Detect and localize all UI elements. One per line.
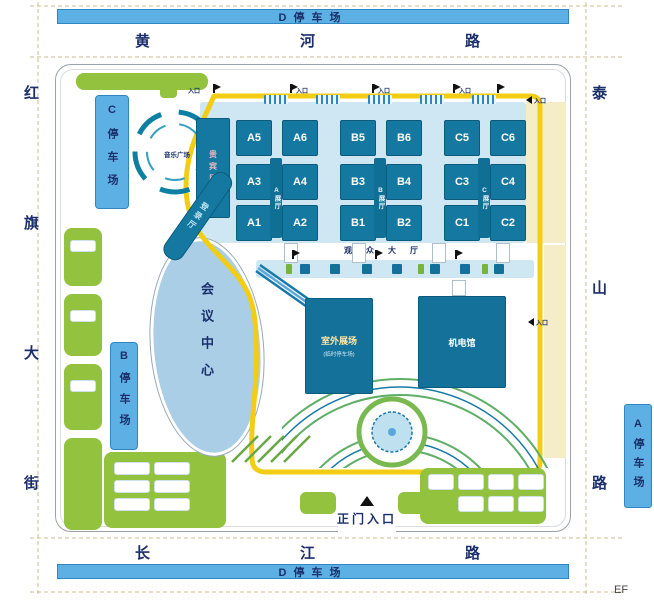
parking-slot	[488, 496, 514, 512]
hall-B4: B4	[386, 164, 422, 200]
hall-B6: B6	[386, 120, 422, 156]
parking-slot	[428, 474, 454, 490]
parking-slot	[114, 480, 150, 493]
outdoor-exhibition-sublabel: (临时停车场)	[323, 350, 354, 358]
parking-slot	[488, 474, 514, 490]
entrance-flag-icon	[213, 84, 215, 93]
machinery-hall-label: 机电馆	[448, 336, 475, 349]
concourse-booth	[330, 264, 340, 274]
main-gate-marker-icon	[360, 496, 374, 506]
parking-slot	[458, 474, 484, 490]
green-strip-left-2	[64, 294, 102, 356]
concourse-booth	[430, 264, 440, 274]
entrance-label: 入口	[188, 86, 200, 95]
corner-note: EF	[614, 584, 628, 596]
concourse-stem	[352, 243, 366, 263]
concourse-green	[482, 264, 488, 274]
outdoor-exhibition: 室外展场 (临时停车场)	[305, 298, 373, 394]
entrance-flag-icon	[372, 84, 374, 93]
concourse-green	[286, 264, 292, 274]
parking-slot	[70, 310, 96, 322]
hall-C4: C4	[490, 164, 526, 200]
pale-zone-right-upper	[526, 102, 566, 243]
entrance-arrow-icon	[526, 96, 532, 104]
hall-B2: B2	[386, 205, 422, 241]
parking-b-label: B停车场	[116, 350, 132, 435]
concourse-green	[418, 264, 424, 274]
street-south: 长江路	[135, 542, 630, 563]
hall-A4: A4	[282, 164, 318, 200]
entrance-arrow-icon	[528, 318, 534, 326]
hall-B5: B5	[340, 120, 376, 156]
hall-B3: B3	[340, 164, 376, 200]
parking-a-bar: A停车场	[624, 404, 652, 508]
parking-slot	[70, 240, 96, 252]
crosswalk-hatch	[368, 95, 392, 104]
hall-C6: C6	[490, 120, 526, 156]
hall-A3: A3	[236, 164, 272, 200]
street-east: 泰山路	[588, 85, 609, 600]
parking-slot	[154, 498, 190, 511]
concourse-booth	[300, 264, 310, 274]
entrance-flag-icon	[290, 84, 292, 93]
entrance-flag-icon	[292, 250, 294, 259]
hall-A1: A1	[236, 205, 272, 241]
machinery-hall: 机电馆	[418, 296, 506, 388]
wing-b-strip: B展厅	[374, 158, 386, 238]
parking-d-bottom-label: D停车场	[279, 564, 348, 580]
wing-c-strip: C展厅	[478, 158, 490, 238]
hall-B1: B1	[340, 205, 376, 241]
concourse-booth	[460, 264, 470, 274]
wing-a-strip: A展厅	[270, 158, 282, 238]
hall-A5: A5	[236, 120, 272, 156]
green-strip-left-1	[64, 228, 102, 286]
concourse-booth	[392, 264, 402, 274]
parking-slot	[114, 498, 150, 511]
parking-d-bottom-bar: D停车场	[57, 564, 569, 579]
green-band-small	[160, 76, 177, 98]
street-north: 黄河路	[135, 30, 630, 51]
parking-slot	[518, 496, 544, 512]
parking-slot	[458, 496, 484, 512]
hall-A6: A6	[282, 120, 318, 156]
concourse-booth	[494, 264, 504, 274]
green-strip-left-4	[64, 438, 102, 530]
hall-C1: C1	[444, 205, 480, 241]
hall-C2: C2	[490, 205, 526, 241]
concourse-booth	[362, 264, 372, 274]
parking-slot	[154, 480, 190, 493]
hall-C5: C5	[444, 120, 480, 156]
concourse-stem	[496, 243, 510, 263]
entrance-label: 入口	[378, 86, 390, 95]
wing-a-label: A展厅	[271, 187, 281, 210]
parking-c-label: C停车场	[104, 104, 120, 197]
parking-slot	[154, 462, 190, 475]
entrance-label: 入口	[534, 96, 546, 105]
entrance-flag-icon	[455, 250, 457, 259]
hall-C3: C3	[444, 164, 480, 200]
crosswalk-hatch	[264, 95, 288, 104]
entrance-label: 入口	[296, 86, 308, 95]
parking-slot	[70, 380, 96, 392]
plaza-label: 音乐广场	[152, 149, 202, 159]
parking-slot	[114, 462, 150, 475]
machinery-stem	[452, 280, 466, 296]
main-gate-label: 正门入口	[312, 510, 422, 527]
entrance-flag-icon	[375, 250, 377, 259]
outdoor-exhibition-label: 室外展场	[321, 334, 357, 347]
crosswalk-hatch	[420, 95, 444, 104]
parking-d-top-label: D停车场	[279, 9, 348, 25]
entrance-label: 入口	[459, 86, 471, 95]
parking-slot	[518, 474, 544, 490]
parking-d-top-bar: D停车场	[57, 9, 569, 24]
green-strip-left-3	[64, 364, 102, 430]
hall-A2: A2	[282, 205, 318, 241]
entrance-flag-icon	[497, 84, 499, 93]
entrance-flag-icon	[453, 84, 455, 93]
wing-c-label: C展厅	[479, 187, 489, 210]
conference-center-label: 会议中心	[197, 282, 216, 390]
crosswalk-hatch	[316, 95, 340, 104]
concourse-stem	[432, 243, 446, 263]
pale-zone-right-strip	[544, 245, 566, 458]
parking-a-label: A停车场	[630, 418, 646, 495]
wing-b-label: B展厅	[375, 187, 385, 210]
site-map: D停车场 D停车场 黄河路 长江路 红旗大街 泰山路 A停车场 EF C停车场 …	[0, 0, 654, 600]
street-west: 红旗大街	[20, 85, 41, 600]
entrance-label: 入口	[536, 318, 548, 327]
crosswalk-hatch	[472, 95, 496, 104]
